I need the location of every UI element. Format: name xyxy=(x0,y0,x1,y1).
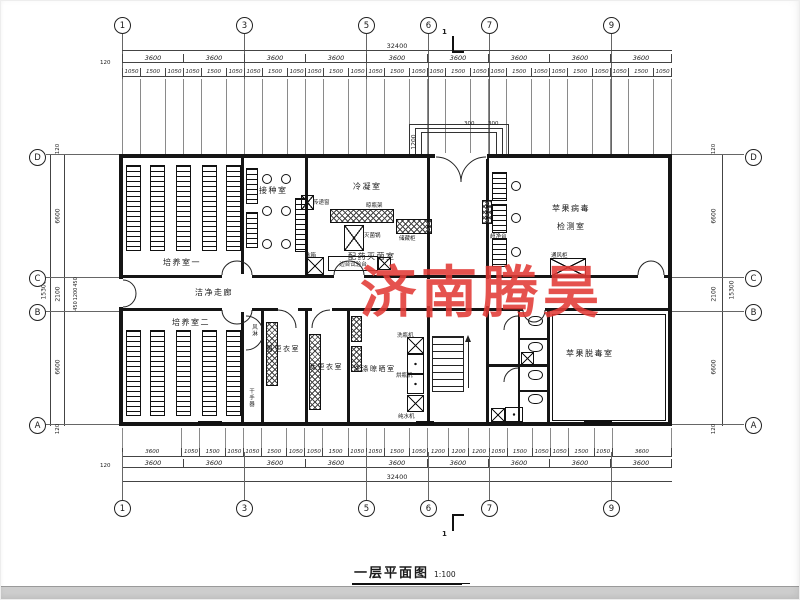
dim-value: 1050 xyxy=(488,68,506,77)
grid-leader xyxy=(611,452,612,500)
dim-line-right xyxy=(722,154,723,426)
dim-value: 1050 xyxy=(122,68,140,77)
grid-bubble-5-top: 5 xyxy=(358,17,375,34)
culture-rack xyxy=(126,165,141,251)
sterilizer-label: 灭菌锅 xyxy=(364,231,381,239)
wall-culture1-east xyxy=(241,154,244,278)
culture-rack xyxy=(150,165,165,251)
dim-value: 1200 xyxy=(448,448,468,457)
dim-left-450b: 450 xyxy=(73,301,79,311)
stair-arrow-line xyxy=(468,340,469,388)
dim-value: 1500 xyxy=(201,68,226,77)
dim-value: 3600 xyxy=(366,459,427,468)
stool xyxy=(262,239,272,249)
dim-left-1200: 1200 xyxy=(73,288,79,301)
dim-value: 3600 xyxy=(488,54,549,63)
section-mark-label-top: 1 xyxy=(442,28,447,36)
door-arc-test xyxy=(638,261,664,275)
extension-line xyxy=(506,79,531,154)
dim-value: 1050 xyxy=(550,448,568,457)
dim-value: 1050 xyxy=(592,68,610,77)
door-arc-stall2 xyxy=(504,368,518,382)
dim-value: 3600 xyxy=(549,459,610,468)
drawing-title: 一层平面图1:100 xyxy=(352,562,462,585)
dim-value: 1500 xyxy=(506,68,531,77)
grid-bubble-7-bottom: 7 xyxy=(481,500,498,517)
inoculation-bench xyxy=(246,168,258,204)
grid-bubble-B-left: B xyxy=(29,304,46,321)
wall-womenchange-east xyxy=(347,308,350,426)
dim-value: 1050 xyxy=(165,68,183,77)
grid-bubble-A-left: A xyxy=(29,417,46,434)
room-label-condensing: 冷凝室 xyxy=(353,181,382,192)
dim-value: 1500 xyxy=(384,68,409,77)
extension-line xyxy=(323,79,348,154)
dim-total-width-top: 32400 xyxy=(122,40,672,51)
extension-line xyxy=(549,79,567,154)
dim-value: 3600 xyxy=(122,54,183,63)
wall-outer-north xyxy=(119,154,672,158)
dim-row-bottom-bays: 360036003600360036003600360036003600 xyxy=(122,459,672,468)
floorplan-canvas: 1 3 5 6 7 9 32400 120 360036003600360036… xyxy=(0,0,800,600)
inoculation-bench xyxy=(246,212,258,248)
dim-value: 3600 xyxy=(305,54,366,63)
dim-value: 3600 xyxy=(610,54,672,63)
grid-bubble-1-top: 1 xyxy=(114,17,131,34)
grid-bubble-C-left: C xyxy=(29,270,46,287)
dim-tick xyxy=(672,424,744,425)
bottle-washer-label: 洗瓶机 xyxy=(397,331,414,339)
extension-line xyxy=(628,79,653,154)
door-arc-womenchange xyxy=(312,310,330,328)
stool xyxy=(262,174,272,184)
dim-left-120-bottom: 120 xyxy=(55,424,61,435)
storage-label: 储藏柜 xyxy=(399,234,416,242)
dim-value: 1050 xyxy=(409,448,427,457)
dim-left-450a: 450 xyxy=(73,277,79,287)
extension-line xyxy=(610,79,628,154)
watermark-text: 济南腾昊 xyxy=(360,248,604,329)
room-label-culture1: 培养室一 xyxy=(163,257,201,268)
grid-bubble-6-bottom: 6 xyxy=(420,500,437,517)
wall-stall-divider xyxy=(518,390,548,392)
culture-rack xyxy=(150,330,165,416)
grid-leader xyxy=(428,452,429,500)
dim-row-top-sub: 1050150010501050150010501050150010501050… xyxy=(122,68,672,77)
dim-right-6600-bottom: 6600 xyxy=(711,359,718,374)
dim-tick xyxy=(672,311,744,312)
dim-value: 3600 xyxy=(183,54,244,63)
extension-line xyxy=(140,79,165,154)
dim-value: 1500 xyxy=(628,68,653,77)
dim-value: 3600 xyxy=(488,459,549,468)
toilet-equipment-box xyxy=(521,352,534,365)
grid-bubble-B-right: B xyxy=(745,304,762,321)
grid-leader xyxy=(122,452,123,500)
fridge-box xyxy=(306,257,324,275)
toilet-equipment-box xyxy=(491,408,505,422)
locker-column xyxy=(266,322,278,386)
dim-line-left xyxy=(64,154,65,426)
grid-bubble-A-right: A xyxy=(745,417,762,434)
extension-line xyxy=(183,79,201,154)
dim-right-120-bottom: 120 xyxy=(711,424,717,435)
dim-value: 1050 xyxy=(225,448,243,457)
grid-bubble-5-bottom: 5 xyxy=(358,500,375,517)
bottle-dryer-label: 烘瓶机 xyxy=(396,371,413,379)
dim-value: 3600 xyxy=(244,54,305,63)
dim-tick xyxy=(672,154,744,155)
room-label-virus-test-2: 检测室 xyxy=(557,221,586,232)
dim-value: 3600 xyxy=(427,54,488,63)
dim-right-15300: 15300 xyxy=(729,280,736,299)
culture-rack xyxy=(176,165,191,251)
dim-value: 1500 xyxy=(445,68,470,77)
extension-line xyxy=(653,79,672,154)
dim-value: 1050 xyxy=(304,448,322,457)
extension-line xyxy=(165,79,183,154)
dim-canopy-300a: 300 xyxy=(464,121,475,127)
dim-value: 1050 xyxy=(183,68,201,77)
dim-value: 1050 xyxy=(226,68,244,77)
wall-culture2-east xyxy=(241,308,244,426)
stool xyxy=(281,239,291,249)
extension-line xyxy=(122,79,140,154)
dim-right-120-top: 120 xyxy=(711,144,717,155)
dim-offset-top: 120 xyxy=(100,60,111,66)
dim-value: 1050 xyxy=(532,448,550,457)
stair-arrow-head xyxy=(465,335,471,342)
room-label-virus-test-1: 苹果病毒 xyxy=(552,203,590,214)
dim-offset-bottom: 120 xyxy=(100,463,111,469)
grid-leader xyxy=(489,452,490,500)
dim-canopy-300b: 300 xyxy=(488,121,499,127)
dim-value: 3600 xyxy=(427,459,488,468)
door-sill xyxy=(416,421,434,425)
dim-value: 1500 xyxy=(199,448,224,457)
clean-bench-label: 超净台 xyxy=(490,232,507,240)
pass-window-box2 xyxy=(482,200,492,224)
wall-stall-divider xyxy=(518,338,548,340)
dim-value: 1050 xyxy=(243,448,261,457)
extension-line xyxy=(287,79,305,154)
culture-rack xyxy=(202,165,217,251)
staircase xyxy=(432,336,464,392)
dim-value: 1500 xyxy=(568,448,593,457)
air-shower-label: 风淋 xyxy=(250,324,258,337)
dim-line-left-total xyxy=(50,154,51,426)
photo-edge-bar xyxy=(0,586,800,600)
dim-value: 1050 xyxy=(549,68,567,77)
door-arc-menchange xyxy=(278,310,296,328)
dim-value: 1050 xyxy=(470,68,488,77)
stool xyxy=(262,206,272,216)
dim-value: 3600 xyxy=(183,459,244,468)
grid-leader xyxy=(244,452,245,500)
detox-room-inner-wall xyxy=(552,314,666,421)
grid-bubble-6-top: 6 xyxy=(420,17,437,34)
stool xyxy=(511,181,521,191)
room-label-inoculation: 接种室 xyxy=(259,185,288,196)
grid-bubble-C-right: C xyxy=(745,270,762,287)
extension-line xyxy=(567,79,592,154)
grid-bubble-7-top: 7 xyxy=(481,17,498,34)
extension-line xyxy=(348,79,366,154)
culture-rack xyxy=(226,330,241,416)
drawing-title-text: 一层平面图 xyxy=(354,566,429,581)
grid-bubble-9-top: 9 xyxy=(603,17,620,34)
room-label-detox: 苹果脱毒室 xyxy=(566,348,614,359)
grid-leader xyxy=(366,452,367,500)
room-label-culture2: 培养室二 xyxy=(172,317,210,328)
purifier-box xyxy=(407,395,424,412)
grid-bubble-D-right: D xyxy=(745,149,762,166)
dim-value: 1050 xyxy=(305,68,323,77)
stool xyxy=(281,174,291,184)
toilet-fixture xyxy=(528,394,543,404)
extension-line xyxy=(226,79,244,154)
dim-value: 1500 xyxy=(507,448,532,457)
window-extension-lines-top xyxy=(122,79,672,154)
dim-value: 1500 xyxy=(322,448,347,457)
dim-value: 1050 xyxy=(366,448,384,457)
grid-bubble-3-bottom: 3 xyxy=(236,500,253,517)
stool xyxy=(281,206,291,216)
dim-left-6600-bottom: 6600 xyxy=(55,359,62,374)
grid-bubble-3-top: 3 xyxy=(236,17,253,34)
culture-rack xyxy=(176,330,191,416)
extension-line xyxy=(592,79,610,154)
dim-value: 3600 xyxy=(612,448,672,457)
bottle-washer-box xyxy=(407,337,424,354)
grid-bubble-1-bottom: 1 xyxy=(114,500,131,517)
dim-value: 1050 xyxy=(409,68,427,77)
toilet-fixture xyxy=(528,370,543,380)
section-mark-label-bottom: 1 xyxy=(442,530,447,538)
room-label-corridor: 洁净走廊 xyxy=(195,287,233,298)
grid-bubble-D-left: D xyxy=(29,149,46,166)
dim-value: 3600 xyxy=(305,459,366,468)
dim-value: 3600 xyxy=(610,459,672,468)
dim-value: 1500 xyxy=(261,448,286,457)
dim-value: 1200 xyxy=(468,448,488,457)
dim-value: 1500 xyxy=(323,68,348,77)
toilet-fixture xyxy=(528,342,543,352)
storage-cabinet xyxy=(396,219,432,234)
dim-value: 1050 xyxy=(244,68,262,77)
clean-bench xyxy=(492,172,507,201)
dim-canopy-1200: 1200 xyxy=(411,134,418,149)
door-arc-entrance xyxy=(436,157,486,182)
dim-value: 1050 xyxy=(366,68,384,77)
dim-value: 1050 xyxy=(610,68,628,77)
extension-line xyxy=(244,79,262,154)
wall-menchange-east xyxy=(305,308,308,426)
extension-line xyxy=(366,79,384,154)
extension-line xyxy=(305,79,323,154)
dim-value: 1500 xyxy=(262,68,287,77)
door-sill xyxy=(584,421,612,425)
dim-value: 1050 xyxy=(531,68,549,77)
section-mark-top xyxy=(452,36,464,53)
dim-value: 1500 xyxy=(140,68,165,77)
culture-rack xyxy=(226,165,241,251)
dim-tick xyxy=(46,311,119,312)
dim-left-6600-top: 6600 xyxy=(55,208,62,223)
drawing-scale: 1:100 xyxy=(434,570,456,579)
extension-line xyxy=(531,79,549,154)
dim-left-120-top: 120 xyxy=(55,144,61,155)
culture-rack xyxy=(126,330,141,416)
dim-row-top-bays: 360036003600360036003600360036003600 xyxy=(122,54,672,63)
wash-basin xyxy=(505,407,523,422)
door-sill xyxy=(198,421,222,425)
dim-right-2100: 2100 xyxy=(711,286,718,301)
hand-dryer-label: 干手器 xyxy=(247,388,255,408)
dim-value: 1050 xyxy=(427,68,445,77)
dim-row-bottom-sub: 3600105015001050105015001050105015001050… xyxy=(122,448,672,457)
stool xyxy=(511,213,521,223)
dim-tick xyxy=(672,277,744,278)
dim-value: 1050 xyxy=(594,448,612,457)
water-purifier-label: 纯水机 xyxy=(398,412,415,420)
extension-line xyxy=(384,79,409,154)
bottle-rack-label: 晾瓶架 xyxy=(366,201,383,209)
room-label-washing: 洗涤晾晒室 xyxy=(353,364,396,374)
door-arc-corridor-west xyxy=(123,280,137,307)
dim-value: 1050 xyxy=(348,448,366,457)
dim-value: 1050 xyxy=(181,448,199,457)
dim-value: 1500 xyxy=(384,448,409,457)
extension-line xyxy=(201,79,226,154)
locker-column xyxy=(309,334,321,410)
grid-bubble-9-bottom: 9 xyxy=(603,500,620,517)
prep-bench xyxy=(330,209,394,223)
section-mark-bottom xyxy=(452,514,464,531)
extension-line xyxy=(262,79,287,154)
dim-value: 1050 xyxy=(286,448,304,457)
culture-rack xyxy=(202,330,217,416)
dim-right-6600-top: 6600 xyxy=(711,208,718,223)
clean-bench xyxy=(492,204,507,233)
dim-value: 1500 xyxy=(567,68,592,77)
dim-tick xyxy=(46,277,119,278)
dim-value: 3600 xyxy=(122,459,183,468)
dim-total-width-bottom: 32400 xyxy=(122,471,672,482)
dim-value: 3600 xyxy=(549,54,610,63)
room-label-womenchange: 女更衣室 xyxy=(309,362,343,372)
dim-value: 3600 xyxy=(122,448,181,457)
dim-value: 1050 xyxy=(489,448,507,457)
dim-value: 1050 xyxy=(348,68,366,77)
room-label-menchange: 男更衣室 xyxy=(266,344,300,354)
dim-value: 1050 xyxy=(287,68,305,77)
dim-value: 1050 xyxy=(653,68,672,77)
door-arc-culture1 xyxy=(222,261,252,275)
dim-value: 3600 xyxy=(244,459,305,468)
fridge-label: 冰箱 xyxy=(305,251,316,259)
dim-left-2100: 2100 xyxy=(55,286,62,301)
pass-window-label: 传递窗 xyxy=(313,198,330,206)
wall-outer-east xyxy=(668,154,672,426)
dim-value: 3600 xyxy=(366,54,427,63)
dim-value: 1200 xyxy=(427,448,447,457)
